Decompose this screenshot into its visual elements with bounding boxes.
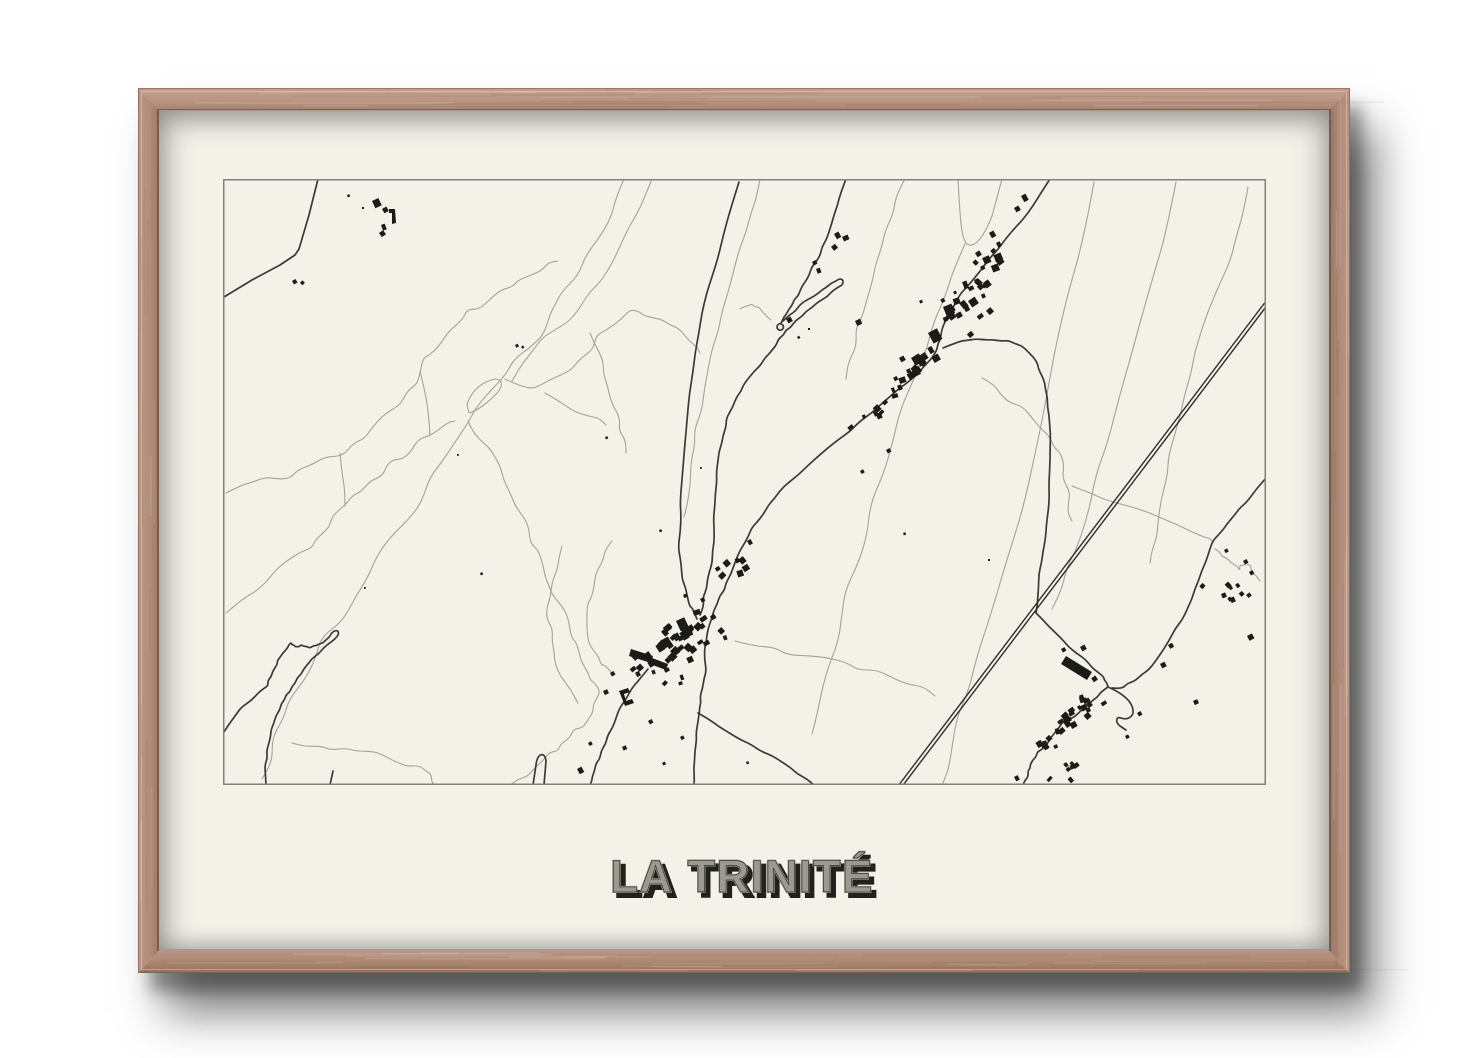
svg-text:LA TRINITÉ: LA TRINITÉ [610,851,873,902]
